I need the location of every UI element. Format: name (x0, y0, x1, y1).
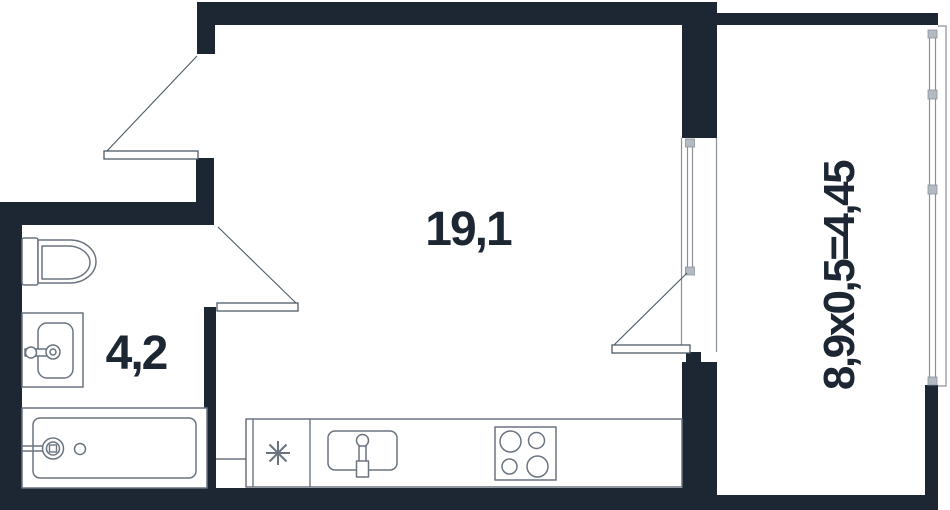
toilet-fixture (22, 238, 96, 285)
burner-large (527, 456, 548, 477)
kitchen-sink-fixture (328, 431, 397, 477)
wall-balcony-right (925, 385, 938, 495)
sink-drain (357, 435, 369, 447)
glazing-marker (928, 377, 937, 385)
vent-asterisk-icon (266, 441, 290, 465)
balcony-outer-edge (938, 26, 946, 386)
glazing-marker (928, 90, 937, 99)
bathtub-drain (75, 444, 86, 455)
windows-layer (682, 26, 947, 386)
door-leaf (104, 151, 198, 159)
wall-right-upper (682, 2, 717, 138)
wall-bathroom-top (0, 202, 214, 225)
glazing-marker (928, 185, 937, 194)
toilet-bowl-inner (42, 246, 90, 279)
wall-balcony-bottom (712, 495, 938, 510)
door-leaf (217, 303, 298, 311)
bathtub-fixture (22, 408, 207, 488)
wall-left (0, 202, 22, 510)
door-swing-line (613, 273, 687, 346)
glazing-marker (928, 30, 937, 38)
wall-right-lower (682, 362, 717, 495)
door-leaf (612, 345, 690, 353)
door-swing-line (106, 56, 197, 152)
bathtub-faucet-inner (47, 442, 60, 455)
burner-large (500, 431, 521, 452)
bathroom-area-label: 4,2 (94, 326, 178, 381)
bathroom-sink-fixture (22, 313, 83, 387)
counter-outline (246, 419, 682, 487)
entry-door (104, 56, 198, 159)
door-swing-line (218, 227, 297, 304)
burner-small (502, 459, 517, 474)
burner-small (529, 433, 545, 449)
wall-top (197, 2, 717, 25)
stove-fixture (495, 427, 556, 480)
sink-drain-inner (50, 349, 56, 355)
balcony-area-label: 8,9x0,5=4,45 (815, 136, 865, 416)
wall-entry-stub-top (197, 2, 215, 54)
floor-plan: 19,1 4,2 8,9x0,5=4,45 (0, 0, 950, 510)
main-room-area-label: 19,1 (398, 202, 538, 257)
toilet-tank (22, 238, 38, 285)
wall-balcony-top (717, 13, 938, 25)
bathroom-door (217, 227, 298, 311)
wall-bottom-main (0, 488, 712, 510)
window-marker (686, 139, 695, 147)
balcony-door (612, 273, 690, 353)
main-room-window (682, 138, 717, 352)
faucet-knob (26, 347, 37, 358)
balcony-glazing (928, 26, 946, 386)
faucet-base (357, 461, 369, 477)
